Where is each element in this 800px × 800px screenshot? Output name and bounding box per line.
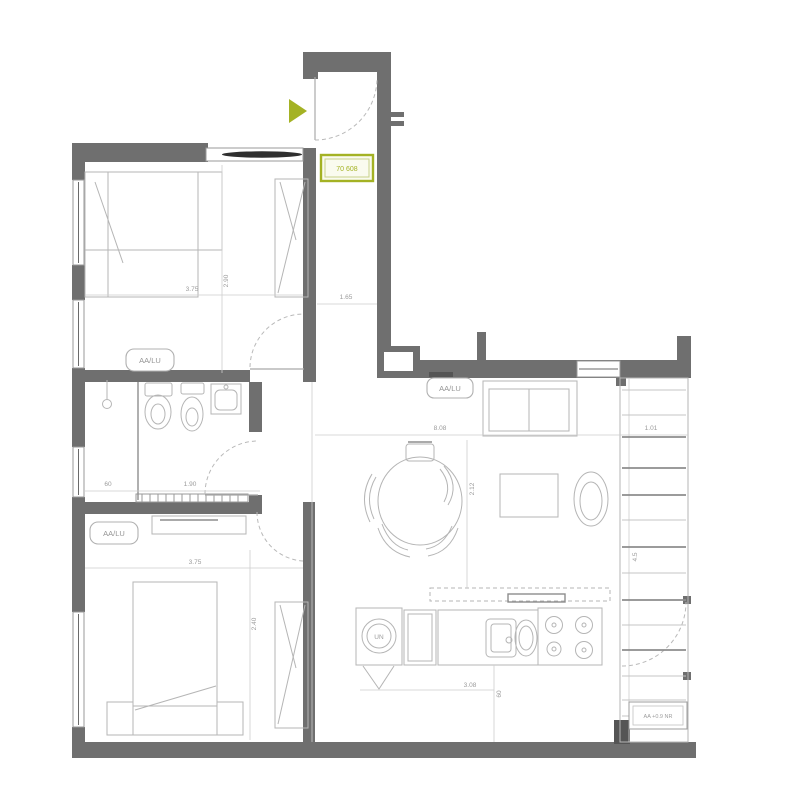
wall-left-2 [72, 368, 85, 447]
bedroom2: AA/LU [90, 516, 308, 735]
dim-balcony-width: 1.01 [645, 425, 658, 432]
bedroom2-label-text: AA/LU [103, 529, 125, 538]
balcony-post-left [616, 378, 626, 386]
coffee-table [500, 474, 558, 517]
bedroom2-bed [133, 582, 217, 735]
bedroom1-label: AA/LU [126, 349, 174, 371]
bidet [145, 383, 172, 429]
dim-balcony-depth: 4.5 [632, 552, 639, 561]
window-left-bedroom2 [73, 612, 84, 727]
dim-living-width: 8.08 [434, 425, 447, 432]
entry-arrow-icon [289, 99, 307, 123]
window-left-closet [73, 447, 84, 497]
bedroom1-bed [85, 172, 198, 297]
bedroom1-wardrobe-diag [278, 182, 305, 293]
dim-bedroom2-width: 3.75 [189, 559, 202, 566]
kitchen-cabinet [404, 610, 436, 665]
wall-left-3 [72, 497, 85, 612]
dim-corridor-width: 1.65 [340, 294, 353, 301]
bedroom2-nightstand-left [107, 702, 133, 735]
kitchen-counter [438, 610, 538, 665]
balcony-strip: AA +0.9 NR [620, 378, 688, 742]
dining-chair-left [364, 474, 372, 522]
dim-kitchen-width: 3.08 [464, 682, 477, 689]
dining-table [364, 442, 462, 557]
living-label-text: AA/LU [439, 384, 461, 393]
duct-notch [384, 352, 413, 371]
bathroom-sink [211, 384, 241, 414]
bedroom1: AA/LU [85, 172, 308, 371]
floor-plan-page: 70 608 AA/LU [0, 0, 800, 800]
wall-bedroom2-right [303, 502, 315, 742]
bedroom2-label: AA/LU [90, 522, 138, 544]
bedroom1-nightstand [198, 172, 222, 250]
wall-bathroom-right-upper [249, 382, 262, 432]
toilet [181, 383, 204, 431]
vent-living-label [429, 372, 453, 377]
dim-living-depth: 2.12 [469, 482, 476, 495]
wall-entry-left-jamb [303, 52, 318, 79]
bedroom2-wardrobe-diag2 [280, 605, 296, 668]
wall-bedroom1-top [72, 143, 208, 162]
dim-bedroom2-depth: 2.40 [251, 617, 258, 630]
bedroom1-wardrobe-diag2 [280, 182, 296, 240]
balcony-door-arc [622, 602, 686, 666]
stove [538, 608, 602, 665]
bedroom2-door-arc [257, 512, 303, 561]
dim-bedroom1-width: 3.75 [186, 286, 199, 293]
wall-tick-1 [391, 112, 404, 117]
window-left-bedroom1 [73, 180, 84, 265]
wall-bathroom-bottom [85, 502, 257, 514]
washer-door-swing [363, 666, 394, 689]
wall-corner-topleft [72, 143, 85, 180]
window-left-bedroom1-b [73, 300, 84, 368]
balcony-outline [620, 378, 688, 742]
floor-plan: 70 608 AA/LU [0, 0, 800, 800]
bedroom2-wardrobe-diag [278, 605, 305, 724]
wall-living-stub [477, 332, 486, 362]
dim-closet-width: 60 [104, 481, 112, 488]
bedroom2-nightstand-right [217, 702, 243, 735]
elevation-tag-text: AA +0.9 NR [644, 714, 673, 720]
elevation-tag: AA +0.9 NR [629, 702, 687, 729]
wall-bottom [72, 742, 696, 758]
unit-tag[interactable]: 70 608 [321, 155, 373, 181]
closet-pendant-lamp [103, 400, 112, 409]
bathroom [103, 380, 242, 500]
washing-machine: UN [356, 608, 402, 689]
balcony-bottom-block [614, 720, 630, 744]
wall-entry-right [377, 66, 391, 346]
bedroom1-label-text: AA/LU [139, 356, 161, 365]
window-glass-dark [222, 151, 302, 157]
entry-door-arc [315, 79, 377, 140]
lounge-chair [574, 472, 608, 526]
bedroom1-door-arc [250, 314, 304, 367]
bedroom1-fold-line [95, 182, 123, 263]
entry-markers: 70 608 [289, 99, 373, 181]
bedroom2-dresser [152, 516, 246, 534]
wall-living-top [420, 360, 690, 378]
living-label: AA/LU [427, 378, 473, 398]
bathroom-door-arc [205, 441, 257, 494]
unit-tag-text: 70 608 [336, 166, 358, 173]
wall-bathroom-top [85, 370, 250, 382]
dim-bedroom1-depth: 2.90 [223, 274, 230, 287]
wall-tick-2 [391, 121, 404, 126]
kitchen: UN [356, 588, 610, 689]
wall-corner-topright [677, 336, 691, 378]
dim-kitchen-offset: 60 [496, 690, 503, 698]
wall-left-1 [72, 265, 85, 300]
living-room: AA/LU [312, 378, 608, 742]
dining-chair-bottom-right [428, 528, 458, 556]
dim-bathroom-width: 1.90 [184, 481, 197, 488]
window-living-top [577, 361, 620, 377]
washer-label: UN [374, 634, 384, 641]
dish-rack [515, 620, 537, 656]
sofa [483, 381, 577, 436]
